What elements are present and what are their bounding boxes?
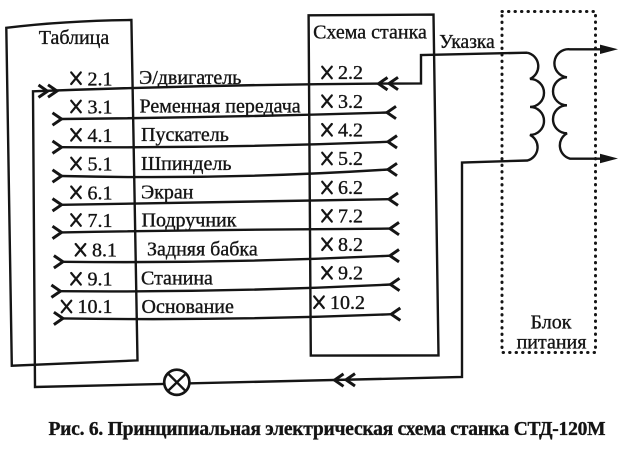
svg-text:6.1: 6.1 xyxy=(88,182,113,204)
svg-text:5.2: 5.2 xyxy=(338,148,363,170)
svg-text:10.1: 10.1 xyxy=(78,296,113,318)
svg-text:Задняя бабка: Задняя бабка xyxy=(147,239,258,261)
svg-text:Основание: Основание xyxy=(142,296,234,318)
svg-text:9.1: 9.1 xyxy=(88,269,113,291)
svg-text:10.2: 10.2 xyxy=(330,292,365,314)
svg-text:2.1: 2.1 xyxy=(88,68,113,90)
svg-text:5.1: 5.1 xyxy=(88,154,113,176)
svg-text:Указка: Указка xyxy=(439,32,495,53)
svg-text:Пускатель: Пускатель xyxy=(141,124,229,146)
svg-text:питания: питания xyxy=(517,332,587,354)
svg-text:3.2: 3.2 xyxy=(338,91,363,113)
svg-text:2.2: 2.2 xyxy=(338,62,363,84)
svg-text:4.1: 4.1 xyxy=(88,125,113,147)
svg-text:8.1: 8.1 xyxy=(92,239,117,261)
svg-text:Блок: Блок xyxy=(531,312,572,334)
svg-text:4.2: 4.2 xyxy=(338,120,363,142)
svg-text:7.1: 7.1 xyxy=(88,210,113,232)
svg-text:9.2: 9.2 xyxy=(338,263,363,285)
svg-text:7.2: 7.2 xyxy=(338,206,363,228)
svg-text:Шпиндель: Шпиндель xyxy=(141,153,231,175)
svg-text:Э/двигатель: Э/двигатель xyxy=(139,67,241,89)
svg-text:6.2: 6.2 xyxy=(338,177,363,199)
svg-text:Подручник: Подручник xyxy=(142,210,237,232)
svg-text:3.1: 3.1 xyxy=(88,97,113,119)
svg-text:8.2: 8.2 xyxy=(338,234,363,256)
svg-text:Станина: Станина xyxy=(141,268,213,290)
svg-text:Схема станка: Схема станка xyxy=(313,22,427,44)
svg-text:Экран: Экран xyxy=(141,182,194,204)
svg-text:Ременная передача: Ременная передача xyxy=(140,96,301,118)
svg-text:Рис. 6. Принципиальная электри: Рис. 6. Принципиальная электрическая схе… xyxy=(49,419,606,440)
svg-text:Таблица: Таблица xyxy=(39,27,110,49)
